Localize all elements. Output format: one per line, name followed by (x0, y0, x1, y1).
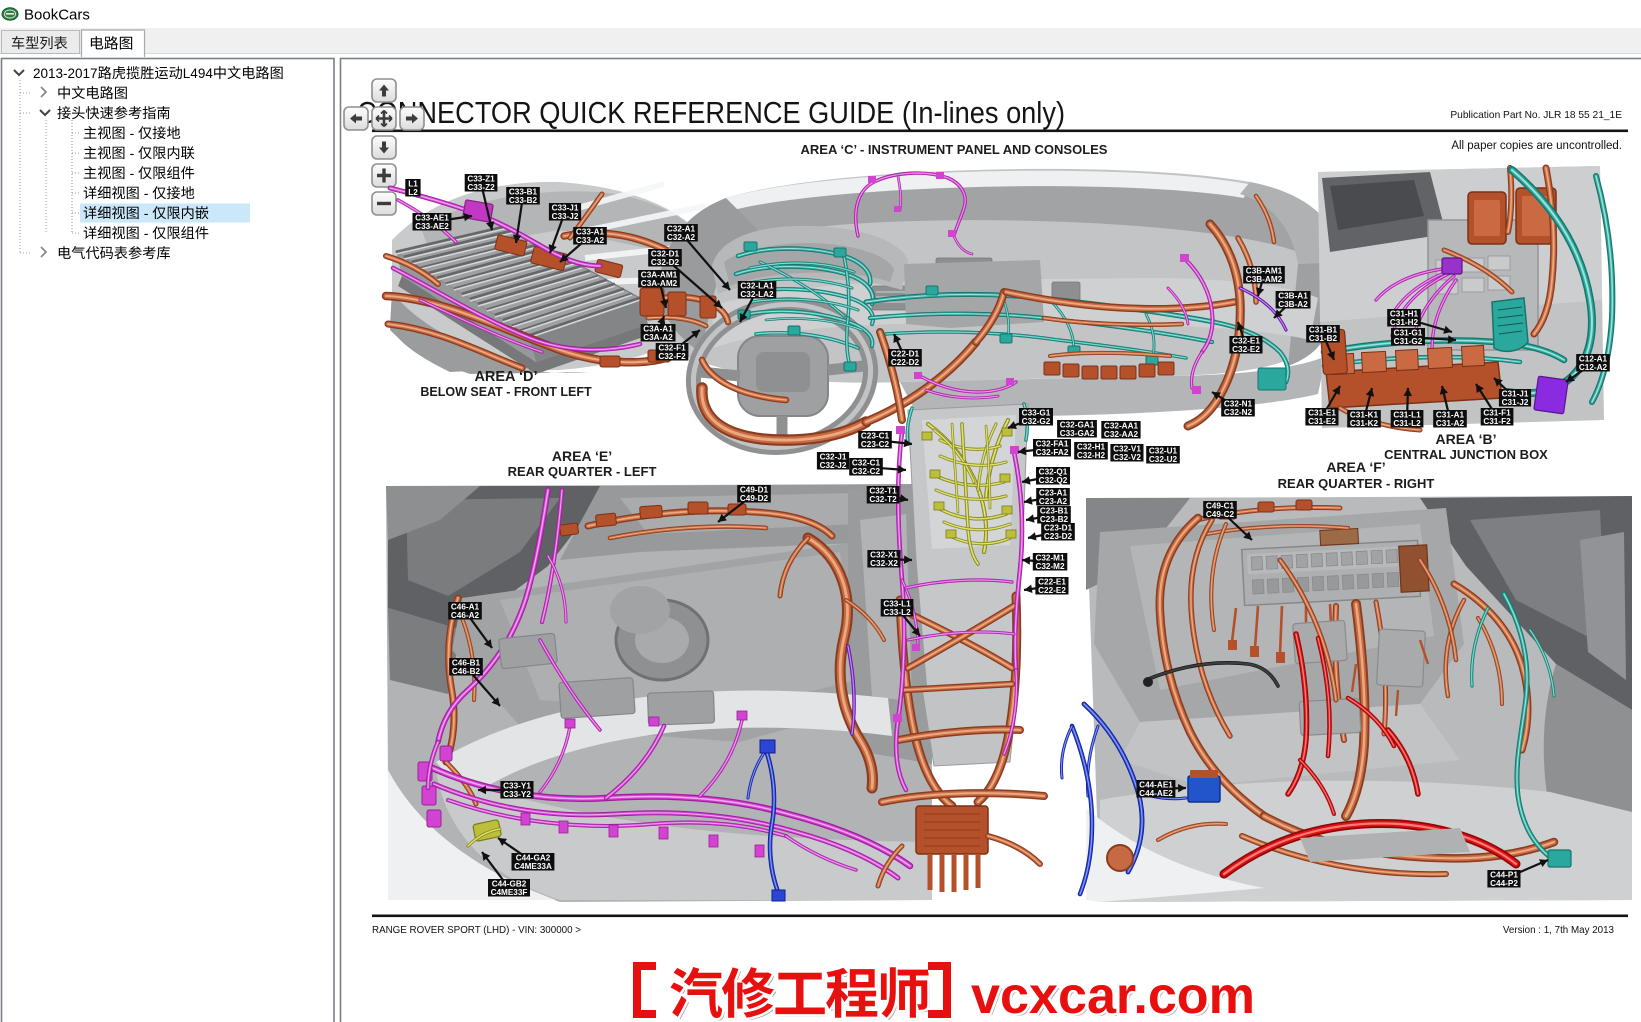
svg-text:C32-FA2: C32-FA2 (1036, 448, 1069, 457)
svg-text:C32-X2: C32-X2 (870, 559, 898, 568)
svg-text:C33-Y2: C33-Y2 (503, 790, 531, 799)
svg-text:C31-L2: C31-L2 (1393, 419, 1421, 428)
svg-text:C32-H2: C32-H2 (1077, 451, 1106, 460)
svg-text:C31-F2: C31-F2 (1483, 417, 1511, 426)
svg-text:C49-D2: C49-D2 (740, 494, 769, 503)
svg-text:vcxcar.com: vcxcar.com (971, 967, 1255, 1022)
svg-text:C3B-AM2: C3B-AM2 (1246, 275, 1283, 284)
svg-text:C32-AA2: C32-AA2 (1104, 430, 1139, 439)
svg-text:C4ME33A: C4ME33A (514, 862, 552, 871)
svg-text:-: - (140, 226, 153, 242)
svg-text:L494: L494 (183, 66, 214, 81)
svg-text:C31-K2: C31-K2 (1350, 419, 1379, 428)
svg-text:2013-2017: 2013-2017 (33, 66, 98, 81)
svg-text:C4ME33F: C4ME33F (491, 888, 528, 897)
svg-text:C32-N2: C32-N2 (1224, 408, 1253, 417)
svg-text:C22-D2: C22-D2 (891, 358, 920, 367)
svg-text:C32-D2: C32-D2 (651, 258, 680, 267)
svg-text:C46-A2: C46-A2 (451, 611, 480, 620)
svg-text:C33-L2: C33-L2 (883, 608, 911, 617)
svg-text:Publication Part No. JLR 18 55: Publication Part No. JLR 18 55 21_1E (1450, 110, 1622, 121)
svg-text:C32-T2: C32-T2 (869, 495, 897, 504)
svg-text:C33-B2: C33-B2 (509, 196, 538, 205)
svg-text:C32-C2: C32-C2 (852, 467, 881, 476)
svg-text:REAR QUARTER - RIGHT: REAR QUARTER - RIGHT (1278, 476, 1435, 491)
svg-text:RANGE ROVER SPORT (LHD) - VIN:: RANGE ROVER SPORT (LHD) - VIN: 300000 > (372, 925, 581, 936)
svg-text:C31-H2: C31-H2 (1390, 318, 1419, 327)
svg-text:C31-B2: C31-B2 (1309, 334, 1338, 343)
svg-text:AREA ‘C’ - INSTRUMENT PANEL AN: AREA ‘C’ - INSTRUMENT PANEL AND CONSOLES (801, 142, 1108, 157)
svg-text:C31-A2: C31-A2 (1436, 419, 1465, 428)
svg-text:AREA ‘B’: AREA ‘B’ (1436, 431, 1497, 447)
svg-text:AREA ‘F’: AREA ‘F’ (1326, 459, 1385, 475)
svg-text:C33-A2: C33-A2 (576, 236, 605, 245)
svg-text:C32-V2: C32-V2 (1113, 453, 1141, 462)
svg-text:C32-Q2: C32-Q2 (1039, 476, 1068, 485)
svg-text:C3B-A2: C3B-A2 (1278, 300, 1308, 309)
svg-text:C33-J2: C33-J2 (552, 212, 579, 221)
svg-text:Version : 1, 7th May 2013: Version : 1, 7th May 2013 (1503, 925, 1615, 936)
svg-text:C31-J2: C31-J2 (1502, 398, 1529, 407)
svg-text:BookCars: BookCars (24, 7, 90, 24)
svg-text:C32-M2: C32-M2 (1035, 562, 1065, 571)
svg-text:C12-A2: C12-A2 (1579, 363, 1608, 372)
svg-text:C32-LA2: C32-LA2 (740, 290, 774, 299)
svg-text:BELOW SEAT - FRONT LEFT: BELOW SEAT - FRONT LEFT (420, 385, 592, 399)
svg-text:REAR QUARTER - LEFT: REAR QUARTER - LEFT (508, 464, 657, 479)
svg-text:C23-C2: C23-C2 (861, 440, 890, 449)
svg-text:CONNECTOR QUICK REFERENCE GUID: CONNECTOR QUICK REFERENCE GUIDE (In-line… (357, 95, 1065, 130)
svg-text:AREA ‘E’: AREA ‘E’ (552, 448, 612, 464)
svg-text:C32-J2: C32-J2 (820, 461, 847, 470)
svg-text:C23-B2: C23-B2 (1040, 515, 1069, 524)
svg-text:C44-AE2: C44-AE2 (1139, 789, 1173, 798)
svg-text:All paper copies are uncontrol: All paper copies are uncontrolled. (1451, 140, 1622, 152)
svg-text:-: - (126, 146, 139, 162)
svg-text:AREA ‘D’: AREA ‘D’ (474, 369, 537, 385)
svg-text:C32-F2: C32-F2 (658, 352, 686, 361)
svg-text:C3A-A2: C3A-A2 (643, 333, 673, 342)
svg-text:C22-E2: C22-E2 (1038, 586, 1066, 595)
svg-text:C33-AE2: C33-AE2 (415, 222, 449, 231)
svg-text:C46-B2: C46-B2 (452, 667, 481, 676)
svg-text:C33-Z2: C33-Z2 (467, 183, 495, 192)
svg-text:C31-G2: C31-G2 (1394, 337, 1423, 346)
svg-text:C3A-AM2: C3A-AM2 (641, 279, 678, 288)
svg-text:C31-E2: C31-E2 (1308, 417, 1336, 426)
svg-text:-: - (140, 186, 153, 202)
svg-text:CENTRAL JUNCTION BOX: CENTRAL JUNCTION BOX (1384, 447, 1548, 462)
svg-text:C32-U2: C32-U2 (1149, 455, 1178, 464)
svg-text:C23-D2: C23-D2 (1044, 532, 1073, 541)
svg-text:-: - (126, 166, 139, 182)
svg-text:C23-A2: C23-A2 (1039, 497, 1068, 506)
svg-text:C32-G2: C32-G2 (1022, 417, 1051, 426)
svg-text:-: - (140, 206, 153, 222)
svg-text:C32-A2: C32-A2 (667, 233, 696, 242)
svg-text:L2: L2 (408, 188, 418, 197)
svg-text:C44-P2: C44-P2 (1490, 879, 1518, 888)
svg-text:C49-C2: C49-C2 (1206, 510, 1235, 519)
svg-text:C33-GA2: C33-GA2 (1060, 429, 1095, 438)
svg-text:-: - (126, 126, 139, 142)
svg-text:C32-E2: C32-E2 (1232, 345, 1260, 354)
